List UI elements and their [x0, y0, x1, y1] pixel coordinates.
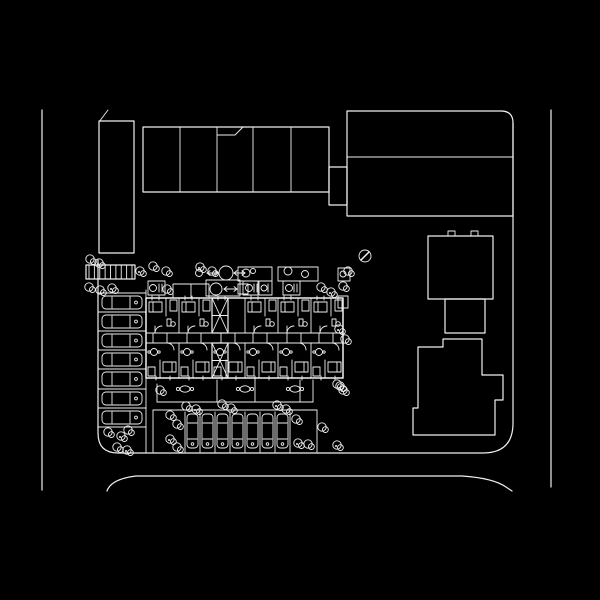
tree-symbol — [136, 267, 147, 277]
site-plan-drawing — [0, 0, 600, 600]
tree-symbol — [333, 380, 344, 390]
tree-symbol — [113, 443, 124, 453]
tree-symbol — [85, 283, 96, 293]
tree-symbol — [123, 446, 133, 456]
tree-symbol — [173, 420, 184, 430]
utility-marker — [359, 250, 371, 262]
tree-symbol — [227, 404, 238, 414]
east-house — [413, 231, 503, 435]
tree-symbol — [196, 263, 207, 273]
northwest-building — [99, 110, 134, 253]
tree-symbol — [104, 428, 115, 438]
walkway-planters — [238, 267, 318, 281]
tree-symbol — [173, 443, 184, 453]
tree-symbol — [95, 259, 106, 269]
walkway-trellis — [86, 265, 135, 279]
patio-row — [157, 380, 313, 402]
northeast-building — [329, 111, 513, 216]
tree-symbol — [339, 282, 350, 292]
tree-symbol — [327, 288, 338, 298]
site-plan-root — [42, 110, 551, 491]
north-building-row — [143, 127, 329, 192]
south-road-curb — [107, 476, 512, 491]
site-plan-canvas — [0, 0, 600, 600]
tree-symbol — [149, 262, 160, 272]
tree-symbol — [162, 267, 173, 277]
tree-symbol — [304, 440, 315, 450]
tree-symbol — [108, 284, 119, 294]
tree-symbol — [333, 441, 344, 451]
tree-symbol — [292, 415, 303, 425]
parked-cars-south — [187, 414, 288, 448]
tree-symbol — [317, 283, 328, 293]
tree-symbol — [166, 411, 177, 421]
tree-symbol — [96, 286, 107, 296]
tree-symbol — [294, 439, 305, 449]
tree-symbol — [318, 423, 329, 433]
parcel-boundary — [98, 123, 513, 453]
tree-symbol — [163, 285, 174, 295]
parked-cars-west — [102, 296, 142, 424]
